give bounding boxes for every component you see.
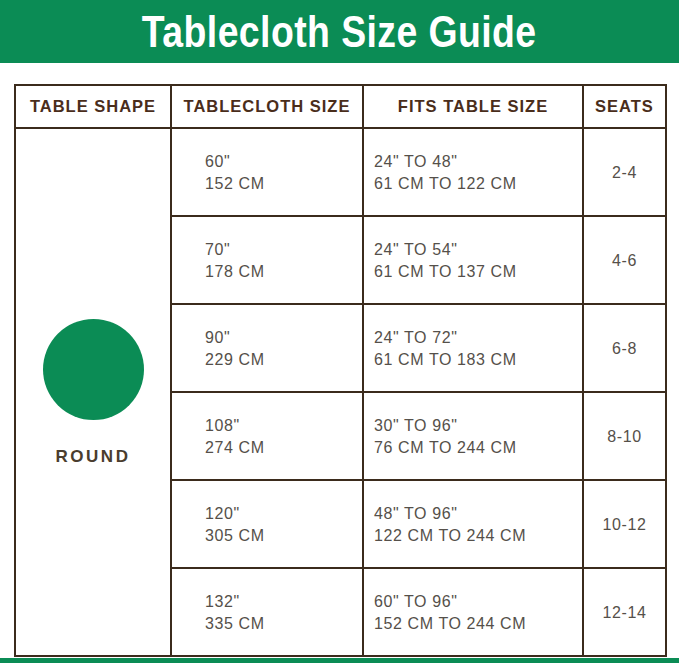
seats-cell: 2-4 [583, 128, 666, 216]
seats-cell: 8-10 [583, 392, 666, 480]
fits-table-size-cell: 24" TO 72" 61 CM TO 183 CM [363, 304, 583, 392]
size-inches: 60" [205, 152, 361, 171]
col-header-tablecloth-size: TABLECLOTH SIZE [171, 85, 363, 128]
fits-table-size-cell: 30" TO 96" 76 CM TO 244 CM [363, 392, 583, 480]
fits-cm: 152 CM TO 244 CM [374, 614, 581, 633]
fits-cm: 76 CM TO 244 CM [374, 438, 581, 457]
fits-table-size-cell: 24" TO 48" 61 CM TO 122 CM [363, 128, 583, 216]
table-row: ROUND 60" 152 CM 24" TO 48" 61 CM TO 122… [15, 128, 666, 216]
fits-table-size-cell: 48" TO 96" 122 CM TO 244 CM [363, 480, 583, 568]
seats-cell: 10-12 [583, 480, 666, 568]
size-cm: 274 CM [205, 438, 361, 457]
col-header-seats: SEATS [583, 85, 666, 128]
size-inches: 132" [205, 592, 361, 611]
seats-cell: 6-8 [583, 304, 666, 392]
tablecloth-size-cell: 60" 152 CM [171, 128, 363, 216]
tablecloth-size-cell: 132" 335 CM [171, 568, 363, 656]
fits-inches: 24" TO 72" [374, 328, 581, 347]
round-circle-icon [43, 319, 144, 420]
fits-inches: 24" TO 48" [374, 152, 581, 171]
header-row: TABLE SHAPE TABLECLOTH SIZE FITS TABLE S… [15, 85, 666, 128]
tablecloth-size-cell: 108" 274 CM [171, 392, 363, 480]
col-header-fits-table-size: FITS TABLE SIZE [363, 85, 583, 128]
size-cm: 152 CM [205, 174, 361, 193]
fits-inches: 30" TO 96" [374, 416, 581, 435]
size-cm: 229 CM [205, 350, 361, 369]
fits-inches: 24" TO 54" [374, 240, 581, 259]
fits-cm: 61 CM TO 137 CM [374, 262, 581, 281]
size-cm: 305 CM [205, 526, 361, 545]
fits-inches: 60" TO 96" [374, 592, 581, 611]
tablecloth-size-cell: 90" 229 CM [171, 304, 363, 392]
fits-table-size-cell: 60" TO 96" 152 CM TO 244 CM [363, 568, 583, 656]
size-guide-table: TABLE SHAPE TABLECLOTH SIZE FITS TABLE S… [14, 84, 667, 657]
tablecloth-size-cell: 120" 305 CM [171, 480, 363, 568]
seats-cell: 12-14 [583, 568, 666, 656]
fits-cm: 122 CM TO 244 CM [374, 526, 581, 545]
fits-cm: 61 CM TO 183 CM [374, 350, 581, 369]
title-banner: Tablecloth Size Guide [0, 0, 679, 63]
fits-inches: 48" TO 96" [374, 504, 581, 523]
page-title: Tablecloth Size Guide [142, 7, 537, 57]
fits-table-size-cell: 24" TO 54" 61 CM TO 137 CM [363, 216, 583, 304]
size-cm: 335 CM [205, 614, 361, 633]
shape-cell: ROUND [15, 128, 171, 656]
size-inches: 90" [205, 328, 361, 347]
seats-cell: 4-6 [583, 216, 666, 304]
size-inches: 70" [205, 240, 361, 259]
col-header-table-shape: TABLE SHAPE [15, 85, 171, 128]
size-inches: 120" [205, 504, 361, 523]
tablecloth-size-cell: 70" 178 CM [171, 216, 363, 304]
size-inches: 108" [205, 416, 361, 435]
bottom-accent-bar [0, 658, 679, 663]
shape-label: ROUND [17, 447, 169, 466]
size-cm: 178 CM [205, 262, 361, 281]
fits-cm: 61 CM TO 122 CM [374, 174, 581, 193]
